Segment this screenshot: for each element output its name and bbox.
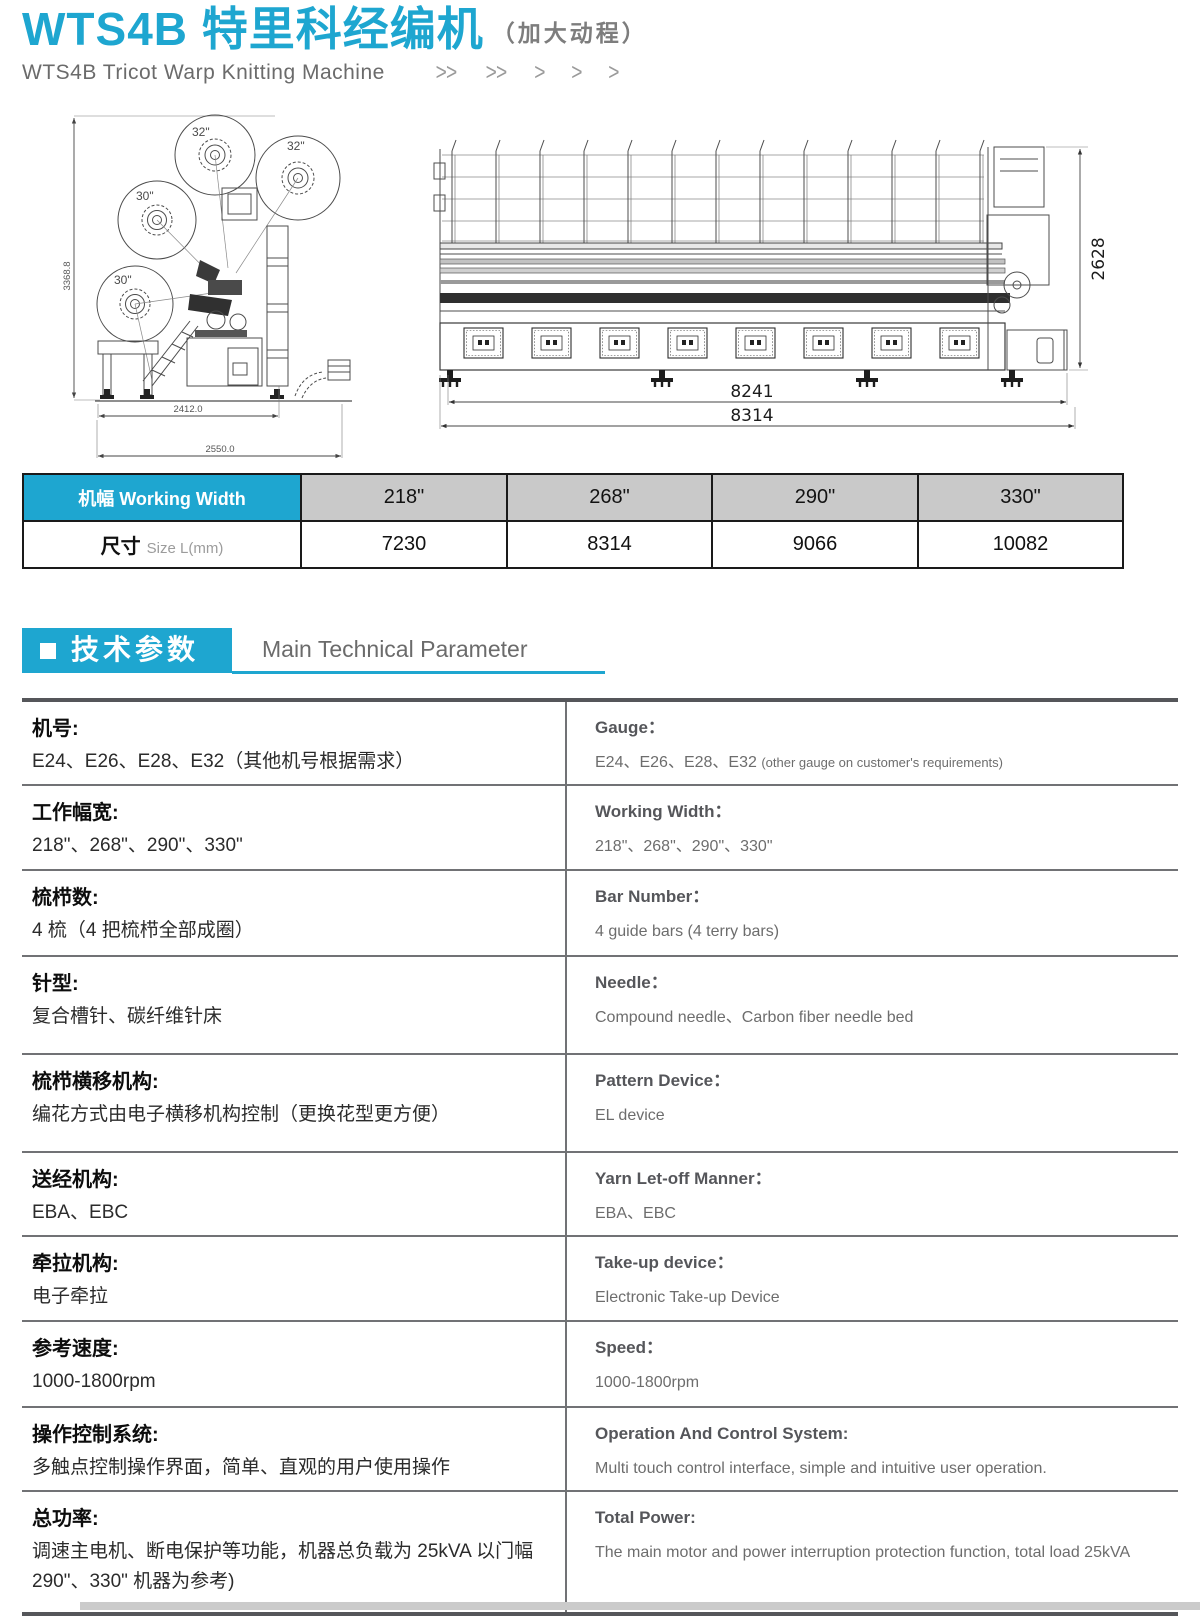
side-width-inner-dimension: 2412.0 — [173, 404, 202, 415]
spec-row-yarn-let-off: 送经机构: EBA、EBC Yarn Let-off Manner： EBA、E… — [22, 1153, 1178, 1237]
spec-zh-label: 操作控制系统: — [32, 1421, 547, 1450]
spec-en-value: E24、E26、E28、E32 (other gauge on customer… — [595, 751, 1170, 774]
spec-table: 机号: E24、E26、E28、E32（其他机号根据需求） Gauge： E24… — [22, 698, 1178, 1616]
size-table-col-218: 218" — [301, 474, 507, 521]
spec-zh-value: 4 梳（4 把梳栉全部成圈） — [32, 916, 547, 945]
spec-en-cell: Gauge： E24、E26、E28、E32 (other gauge on c… — [565, 702, 1178, 784]
spec-en-cell: Needle： Compound needle、Carbon fiber nee… — [565, 957, 1178, 1053]
spec-en-cell: Operation And Control System: Multi touc… — [565, 1408, 1178, 1490]
side-width-outer-dimension: 2550.0 — [205, 444, 234, 455]
page-header: WTS4B 特里科经编机 （加大动程） WTS4B Tricot Warp Kn… — [22, 4, 648, 85]
machine-side-view-drawing: 3368.8 32" 32" 30" 30" — [40, 108, 395, 468]
spec-zh-value: 复合槽针、碳纤维针床 — [32, 1002, 547, 1031]
spec-en-value: 1000-1800rpm — [595, 1371, 1170, 1394]
front-width-inner-dimension: 8241 — [730, 382, 773, 402]
size-row-label: 尺寸Size L(mm) — [23, 521, 301, 568]
spec-zh-label: 梳栉数: — [32, 884, 547, 913]
beam-size-label: 32" — [287, 139, 305, 153]
section-title-zh: 技术参数 — [71, 636, 199, 666]
spec-en-label: Bar Number： — [595, 885, 1170, 909]
spec-en-value-text: E24、E26、E28、E32 — [595, 754, 757, 771]
spec-en-value: 4 guide bars (4 terry bars) — [595, 920, 1170, 943]
size-value: 9066 — [712, 521, 918, 568]
spec-en-cell: Take-up device： Electronic Take-up Devic… — [565, 1237, 1178, 1319]
spec-zh-value: 编花方式由电子横移机构控制（更换花型更方便） — [32, 1100, 547, 1129]
beam-size-label: 32" — [192, 125, 210, 139]
spec-en-value: Electronic Take-up Device — [595, 1286, 1170, 1309]
spec-en-label: Needle： — [595, 971, 1170, 995]
machine-front-view-drawing: 2628 8241 8314 — [412, 135, 1112, 435]
spec-row-control-system: 操作控制系统: 多触点控制操作界面，简单、直观的用户使用操作 Operation… — [22, 1408, 1178, 1492]
page-bottom-strip — [80, 1602, 1200, 1610]
spec-row-total-power: 总功率: 调速主电机、断电保护等功能，机器总负载为 25kVA 以门幅 290"… — [22, 1492, 1178, 1612]
spec-zh-cell: 操作控制系统: 多触点控制操作界面，简单、直观的用户使用操作 — [22, 1408, 565, 1490]
spec-zh-value: 多触点控制操作界面，简单、直观的用户使用操作 — [32, 1453, 547, 1482]
spec-zh-cell: 工作幅宽: 218"、268"、290"、330" — [22, 786, 565, 868]
spec-row-pattern-device: 梳栉横移机构: 编花方式由电子横移机构控制（更换花型更方便） Pattern D… — [22, 1055, 1178, 1153]
size-label-zh: 尺寸 — [101, 536, 141, 558]
spec-zh-label: 总功率: — [32, 1505, 547, 1534]
size-value: 10082 — [918, 521, 1123, 568]
section-title-box: 技术参数 — [22, 628, 232, 673]
size-value: 8314 — [507, 521, 712, 568]
spec-zh-value: 电子牵拉 — [32, 1282, 547, 1311]
spec-zh-label: 机号: — [32, 715, 547, 744]
square-bullet-icon — [40, 643, 56, 659]
spec-row-speed: 参考速度: 1000-1800rpm Speed： 1000-1800rpm — [22, 1322, 1178, 1408]
chevron-icon: > — [608, 61, 618, 85]
size-value: 7230 — [301, 521, 507, 568]
spec-zh-cell: 参考速度: 1000-1800rpm — [22, 1322, 565, 1406]
spec-row-needle: 针型: 复合槽针、碳纤维针床 Needle： Compound needle、C… — [22, 957, 1178, 1055]
spec-zh-value: 调速主电机、断电保护等功能，机器总负载为 25kVA 以门幅 290"、330"… — [32, 1537, 547, 1596]
size-table-value-row: 尺寸Size L(mm) 7230 8314 9066 10082 — [23, 521, 1123, 568]
front-height-dimension: 2628 — [1089, 237, 1109, 280]
technical-drawings: 3368.8 32" 32" 30" 30" — [0, 100, 1200, 470]
spec-zh-cell: 针型: 复合槽针、碳纤维针床 — [22, 957, 565, 1053]
spec-en-label: Pattern Device： — [595, 1069, 1170, 1093]
spec-en-cell: Pattern Device： EL device — [565, 1055, 1178, 1151]
chevron-icon: > — [534, 61, 544, 85]
spec-en-value: EBA、EBC — [595, 1202, 1170, 1225]
spec-en-label: Operation And Control System: — [595, 1422, 1170, 1446]
spec-en-label: Take-up device： — [595, 1251, 1170, 1275]
page-title-suffix: （加大动程） — [492, 14, 648, 55]
spec-zh-value: E24、E26、E28、E32（其他机号根据需求） — [32, 747, 547, 776]
spec-en-label: Yarn Let-off Manner： — [595, 1167, 1170, 1191]
catalog-page: WTS4B 特里科经编机 （加大动程） WTS4B Tricot Warp Kn… — [0, 0, 1200, 1610]
beam-size-label: 30" — [136, 189, 154, 203]
size-table-header-row: 机幅 Working Width 218" 268" 290" 330" — [23, 474, 1123, 521]
size-label-en: Size L(mm) — [147, 540, 224, 557]
spec-en-label: Speed： — [595, 1336, 1170, 1360]
spec-zh-cell: 机号: E24、E26、E28、E32（其他机号根据需求） — [22, 702, 565, 784]
size-table-col-330: 330" — [918, 474, 1123, 521]
spec-en-label: Total Power: — [595, 1506, 1170, 1530]
spec-en-cell: Total Power: The main motor and power in… — [565, 1492, 1178, 1612]
spec-zh-value: 218"、268"、290"、330" — [32, 831, 547, 860]
section-underline — [232, 671, 605, 674]
spec-en-cell: Yarn Let-off Manner： EBA、EBC — [565, 1153, 1178, 1235]
page-title: WTS4B 特里科经编机 — [22, 4, 484, 55]
spec-row-bar-number: 梳栉数: 4 梳（4 把梳栉全部成圈） Bar Number： 4 guide … — [22, 871, 1178, 957]
spec-en-value: Compound needle、Carbon fiber needle bed — [595, 1006, 1170, 1029]
spec-zh-value: EBA、EBC — [32, 1198, 547, 1227]
size-table-col-290: 290" — [712, 474, 918, 521]
spec-zh-cell: 牵拉机构: 电子牵拉 — [22, 1237, 565, 1319]
beam-size-label: 30" — [114, 273, 132, 287]
chevron-icon: >> — [435, 61, 456, 85]
spec-en-value: EL device — [595, 1104, 1170, 1127]
spec-zh-label: 牵拉机构: — [32, 1250, 547, 1279]
section-title-en: Main Technical Parameter — [262, 636, 527, 663]
spec-zh-cell: 梳栉数: 4 梳（4 把梳栉全部成圈） — [22, 871, 565, 955]
spec-en-value: The main motor and power interruption pr… — [595, 1541, 1170, 1564]
spec-en-value: 218"、268"、290"、330" — [595, 835, 1170, 858]
section-header: 技术参数 Main Technical Parameter — [22, 628, 1178, 674]
spec-zh-label: 针型: — [32, 970, 547, 999]
spec-en-cell: Speed： 1000-1800rpm — [565, 1322, 1178, 1406]
chevron-icon: >> — [485, 61, 506, 85]
size-table-header-label: 机幅 Working Width — [23, 474, 301, 521]
spec-zh-label: 梳栉横移机构: — [32, 1068, 547, 1097]
spec-en-cell: Bar Number： 4 guide bars (4 terry bars) — [565, 871, 1178, 955]
spec-zh-label: 送经机构: — [32, 1166, 547, 1195]
spec-en-value: Multi touch control interface, simple an… — [595, 1457, 1170, 1480]
front-width-outer-dimension: 8314 — [730, 406, 773, 426]
chevron-icon: > — [571, 61, 581, 85]
spec-en-note: (other gauge on customer's requirements) — [761, 755, 1003, 770]
spec-row-gauge: 机号: E24、E26、E28、E32（其他机号根据需求） Gauge： E24… — [22, 702, 1178, 786]
chevron-decoration-icon: >> >> > > > — [433, 61, 620, 85]
spec-zh-cell: 送经机构: EBA、EBC — [22, 1153, 565, 1235]
spec-zh-cell: 梳栉横移机构: 编花方式由电子横移机构控制（更换花型更方便） — [22, 1055, 565, 1151]
spec-row-take-up: 牵拉机构: 电子牵拉 Take-up device： Electronic Ta… — [22, 1237, 1178, 1321]
spec-row-working-width: 工作幅宽: 218"、268"、290"、330" Working Width：… — [22, 786, 1178, 870]
spec-en-label: Gauge： — [595, 716, 1170, 740]
spec-zh-label: 参考速度: — [32, 1335, 547, 1364]
side-height-dimension: 3368.8 — [62, 261, 73, 290]
spec-zh-cell: 总功率: 调速主电机、断电保护等功能，机器总负载为 25kVA 以门幅 290"… — [22, 1492, 565, 1612]
spec-en-cell: Working Width： 218"、268"、290"、330" — [565, 786, 1178, 868]
page-subtitle: WTS4B Tricot Warp Knitting Machine — [22, 61, 385, 85]
spec-en-label: Working Width： — [595, 800, 1170, 824]
size-table: 机幅 Working Width 218" 268" 290" 330" 尺寸S… — [22, 473, 1124, 569]
spec-zh-value: 1000-1800rpm — [32, 1367, 547, 1396]
size-table-col-268: 268" — [507, 474, 712, 521]
spec-zh-label: 工作幅宽: — [32, 799, 547, 828]
